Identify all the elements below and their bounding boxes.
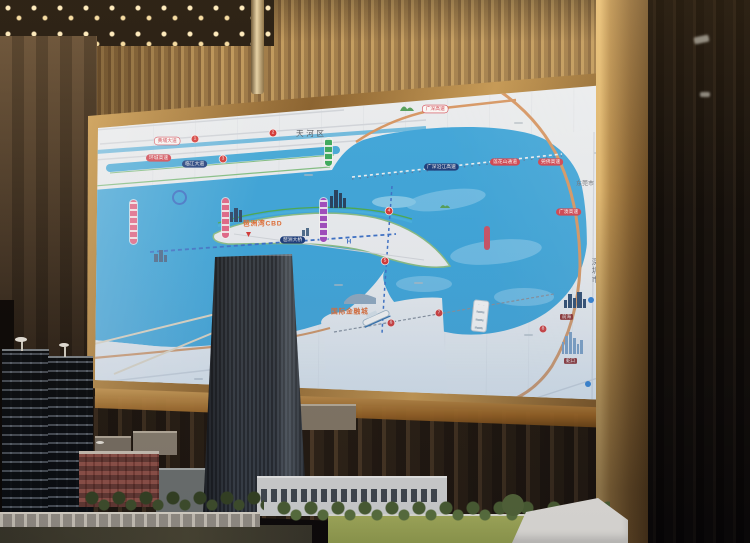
showroom-photo: 天河区 东莞市 深圳市 琶洲湾CBD 国际金融城 广深沿江高速 莲花山通道 琶洲… (0, 0, 750, 543)
metro-station-dot: 4 (386, 208, 393, 215)
metro-station-dot: 7 (436, 310, 443, 317)
metro-line-purple-pill (320, 198, 327, 242)
led-map-screen: 天河区 东莞市 深圳市 琶洲湾CBD 国际金融城 广深沿江高速 莲花山通道 琶洲… (94, 82, 610, 402)
metro-station-dot: 3 (220, 156, 227, 163)
right-dark-wall (644, 0, 750, 543)
area-label-financial-city: 国际金融城 (331, 308, 369, 315)
metro-station-dot: 8 (540, 326, 547, 333)
district-label-tianhe: 天河区 (296, 130, 327, 138)
model-tower-left-a (2, 349, 49, 515)
model-low-building (300, 404, 356, 430)
hospital-marker: H (347, 239, 352, 245)
antenna-disc (15, 337, 27, 342)
antenna-stem (64, 347, 66, 357)
metro-station-dot: 2 (270, 130, 277, 137)
model-fence (0, 512, 260, 527)
expressway-pill-yanjiang: 广深沿江高速 (424, 163, 459, 170)
road-pill-guanfo: 莞佛高速 (538, 158, 563, 165)
city-label-dongguan: 东莞市 (576, 181, 594, 187)
ferry-pier-card (470, 299, 489, 332)
metro-line-green-pill (325, 138, 332, 166)
gold-pillar (596, 0, 648, 543)
green-hills-icon (400, 107, 414, 112)
wall-reflection-mark (700, 92, 710, 97)
antenna-stem (21, 341, 23, 351)
shenzhen-area-tag-qianhai: 前海 (560, 314, 573, 320)
metro-line-pink-pill (130, 200, 137, 244)
road-pill-huancheng: 环城高速 (146, 154, 171, 161)
crossing-pill-lianhuashan: 莲花山通道 (490, 158, 520, 165)
antenna-disc (59, 343, 69, 347)
model-bush (502, 494, 524, 516)
road-pill-guangshen: 广深高速 (422, 105, 448, 113)
shenzhen-area-tag-shekou: 蛇口 (564, 358, 577, 364)
model-main-tower (203, 254, 309, 514)
road-pill-huangpu-avenue: 黄埔大道 (154, 137, 180, 145)
blue-ring-logo (172, 190, 187, 205)
crossing-pill-icon (484, 226, 490, 250)
area-label-pazhou-bay-cbd: 琶洲湾CBD (243, 220, 282, 227)
metro-station-dot: 1 (192, 136, 199, 143)
metro-station-dot: 5 (382, 258, 389, 265)
metro-logo-icon (585, 381, 591, 387)
light-pole (251, 0, 264, 94)
bridge-pill-pazhou: 琶洲大桥 (280, 236, 305, 243)
map-graphics (94, 82, 610, 402)
metro-station-dot: 6 (388, 320, 395, 327)
metro-logo-icon (588, 297, 594, 303)
antenna-disc (96, 441, 104, 444)
road-pill-guang-ao: 广澳高速 (556, 208, 581, 215)
model-base-strip (0, 525, 312, 543)
road-pill-linjiang: 临江大道 (182, 160, 207, 167)
bay-area-map: 天河区 东莞市 深圳市 琶洲湾CBD 国际金融城 广深沿江高速 莲花山通道 琶洲… (94, 82, 610, 402)
metro-line-pink-pill (222, 198, 229, 238)
